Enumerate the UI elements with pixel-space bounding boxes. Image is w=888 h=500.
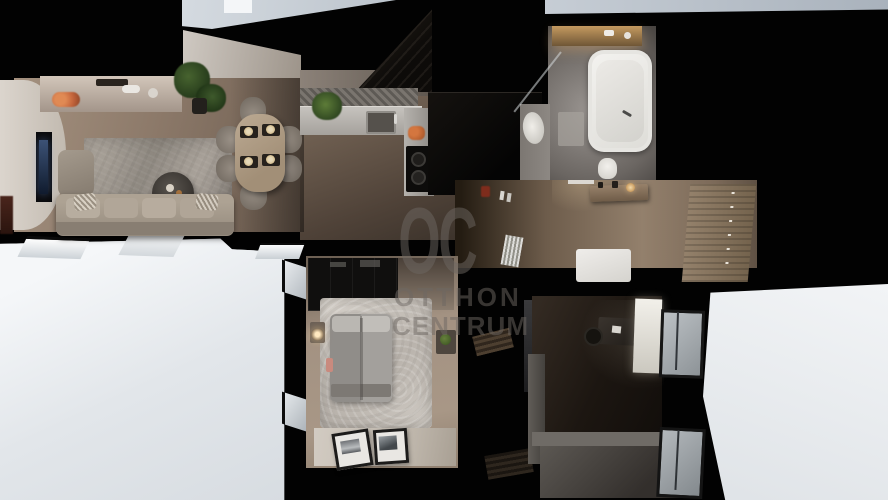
orange-flowers [52,92,80,107]
plate [266,155,275,164]
watermark-logo: OC [398,194,476,288]
wardrobe-reflection [330,262,346,267]
wardrobe-reflection [360,260,380,267]
salmon-accent [326,358,333,372]
watermark-line2: CENTRUM [392,313,514,339]
toilet [598,158,617,179]
framed-picture-photo [379,435,398,450]
bedside-lamp-glow [311,328,324,341]
bathtub-basin [596,60,644,142]
kitchen-sink [366,111,396,134]
office-chair [584,327,603,346]
pot [411,152,426,167]
exterior-top-notch [224,0,252,13]
faucet [394,114,397,124]
open-window-icon [282,392,309,433]
plant-pot [192,98,207,114]
table-decor [166,184,174,192]
office-lower-band [532,432,666,446]
console-decor [612,181,618,188]
plate [244,157,253,166]
exterior-bottom-right [703,284,888,500]
exterior-bottom-left [0,236,290,500]
duvet-fold [360,318,363,400]
open-window-icon [255,243,305,259]
red-floor-lamp [0,196,13,234]
entry-wardrobe [682,184,757,282]
exterior-top-right [545,0,888,14]
patterned-pillow [195,193,219,211]
vanity-item [624,32,631,39]
exterior-top-left [182,0,396,29]
bath-mat [558,112,584,146]
sofa-backrest [56,222,234,235]
open-window-icon [282,260,309,301]
watermark-line1: OTTHON [394,284,512,310]
vanity-item [604,30,614,36]
open-window-icon [17,236,90,259]
apartment-render: OC OTTHON CENTRUM [0,0,888,500]
office-window [659,309,705,378]
desk-paper [612,326,622,334]
office-window [656,427,706,499]
sofa-cushion [104,198,138,218]
counter-plant [312,92,342,120]
glowing-curtain [633,299,663,374]
decor-dot [148,88,158,98]
plate [244,127,253,136]
armchair [58,150,94,196]
console-decor [598,182,603,188]
sofa-cushion [142,198,176,218]
food-bowls [408,126,425,140]
stairwell-bench [484,448,533,480]
tv-screen [39,140,48,194]
console-lamp-glow [626,183,635,192]
red-decor [481,186,490,197]
white-dish [122,85,140,93]
pot [411,170,426,185]
patterned-pillow [73,193,97,212]
plate [266,125,275,134]
office-door-white [576,249,631,282]
